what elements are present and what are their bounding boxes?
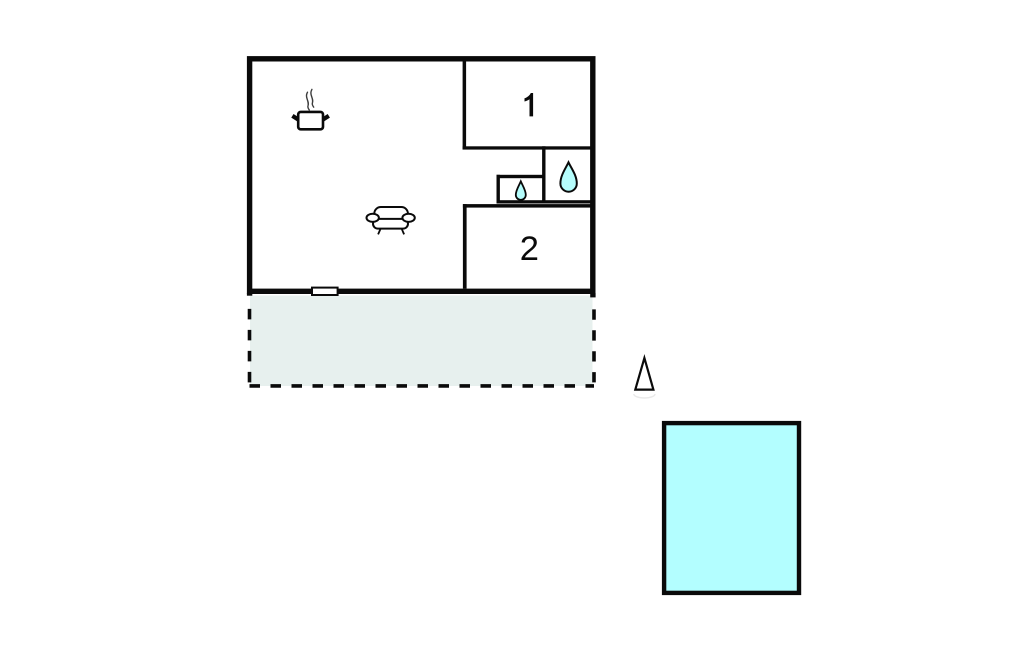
svg-text:2: 2 (520, 230, 539, 268)
